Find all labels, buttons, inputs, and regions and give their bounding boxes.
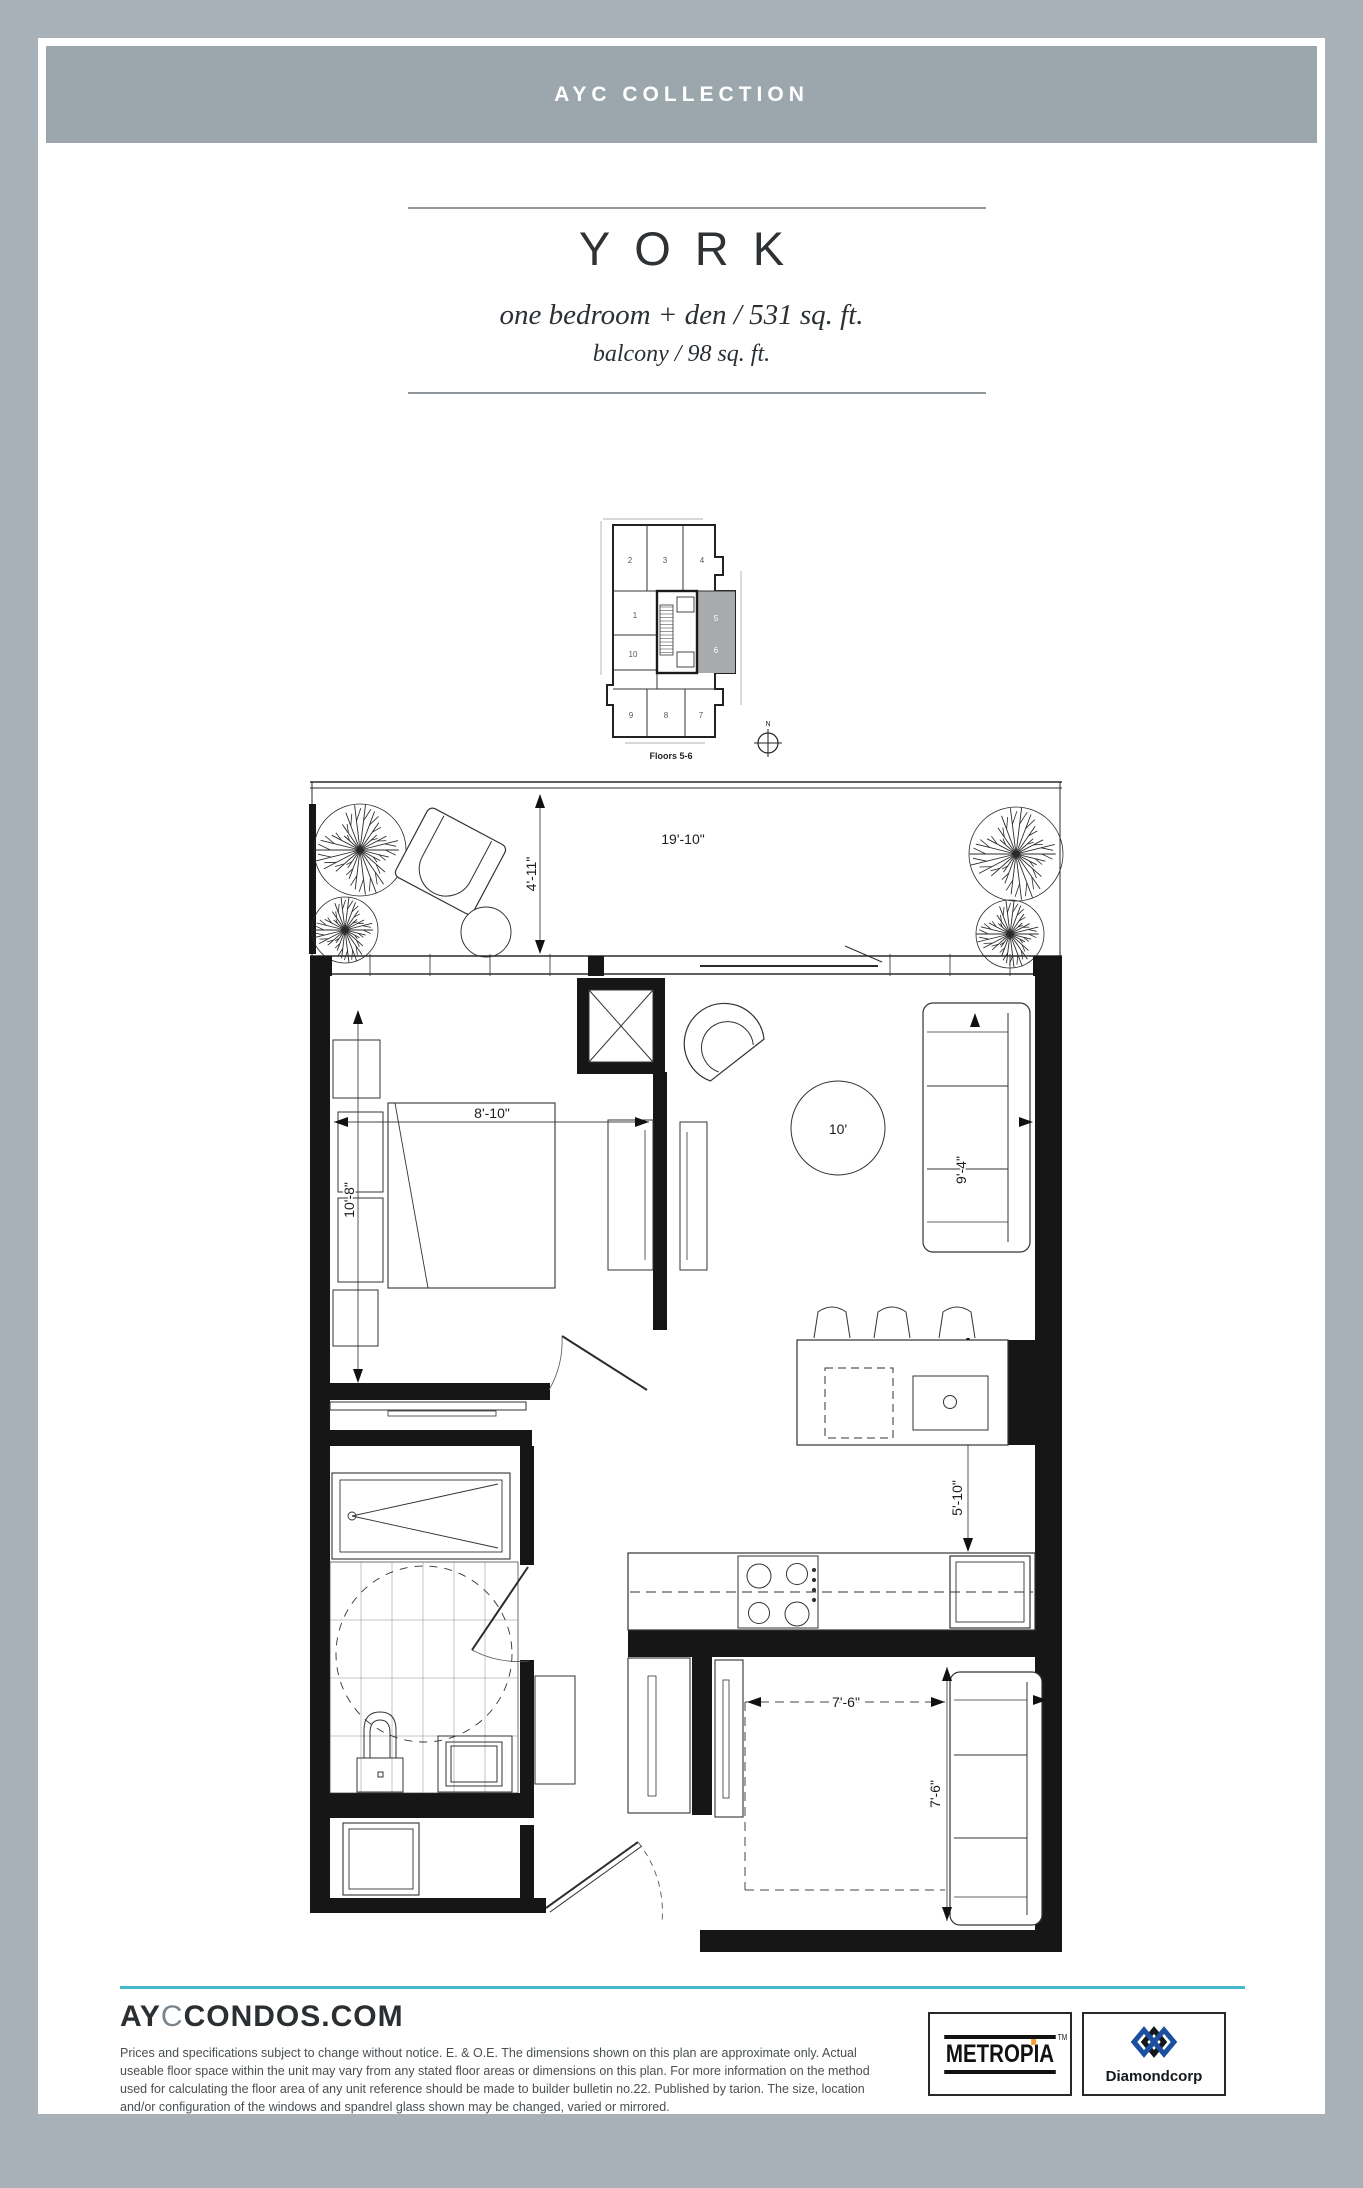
dim-den-depth: 7'-6"	[927, 1780, 943, 1808]
dim-living-depth: 9'-4"	[953, 1156, 969, 1184]
legal-text: Prices and specifications subject to cha…	[120, 2044, 890, 2117]
brochure-page: AYC COLLECTION YORK one bedroom + den / …	[0, 0, 1363, 2188]
linen-cabinet	[535, 1676, 575, 1784]
hall-console	[330, 1402, 526, 1410]
brand-url: AYCCONDOS.COM	[120, 2000, 404, 2034]
frame-bottom	[0, 2114, 1363, 2188]
floor-plan-svg: 4'-11" 19'-10"	[300, 770, 1100, 1995]
tree-icon	[314, 804, 406, 896]
dim-den-width: 7'-6"	[832, 1694, 860, 1710]
balcony-planter-wall	[309, 804, 316, 954]
key-plan: 2 3 4 1 10 9 8 7 5 6 Floors 5-6 N	[585, 505, 795, 767]
toilet	[357, 1712, 403, 1792]
den-sofa	[950, 1672, 1042, 1925]
unit-8-label: 8	[664, 711, 669, 720]
bathroom-door	[472, 1567, 528, 1650]
turning-circle	[336, 1566, 512, 1742]
arrow-up-icon	[353, 1010, 363, 1024]
den-cabinet	[628, 1658, 690, 1813]
living-sofa	[923, 1003, 1030, 1252]
bedroom	[330, 1040, 653, 1416]
nightstand	[333, 1290, 378, 1346]
balcony-table	[461, 907, 511, 957]
vanity-sink	[438, 1736, 512, 1792]
title-rule-bottom	[408, 392, 986, 394]
unit-4-label: 4	[700, 556, 705, 565]
bedroom-dresser	[608, 1120, 653, 1270]
trademark-symbol: TM	[1058, 2033, 1067, 2042]
unit-2-label: 2	[628, 556, 633, 565]
living-chair	[668, 987, 769, 1084]
unit-10-label: 10	[629, 650, 638, 659]
unit-6-label: 6	[714, 646, 719, 655]
dim-balcony-width: 19'-10"	[661, 831, 704, 847]
diamondcorp-wordmark: Diamondcorp	[1106, 2068, 1203, 2085]
shaft	[577, 978, 665, 1074]
den-outline	[745, 1702, 945, 1890]
dim-bedroom-depth: 10'-8"	[341, 1182, 357, 1218]
metropia-wordmark: METROPIA	[944, 2035, 1055, 2074]
balcony-spec: balcony / 98 sq. ft.	[0, 341, 1363, 368]
kitchen-island	[797, 1340, 1008, 1445]
bathtub	[332, 1473, 510, 1559]
dim-bedroom-width: 8'-10"	[474, 1105, 510, 1121]
header-bar: AYC COLLECTION	[46, 46, 1317, 143]
diamondcorp-logo: Diamondcorp	[1082, 2012, 1226, 2096]
arrow-right-icon	[931, 1697, 945, 1707]
bathroom	[330, 1473, 529, 1793]
tree-icon	[969, 807, 1063, 901]
arrow-down-icon	[353, 1369, 363, 1383]
nightstand	[333, 1040, 380, 1098]
kitchen-counter	[628, 1553, 1035, 1630]
bed	[388, 1103, 555, 1288]
diamondcorp-mark-icon	[1124, 2023, 1184, 2061]
dim-living-rug: 10'	[829, 1121, 847, 1137]
arrow-up-icon	[942, 1667, 952, 1681]
arrow-down-icon	[963, 1538, 973, 1552]
frame-top	[0, 0, 1363, 38]
floor-plan: 4'-11" 19'-10"	[300, 770, 1100, 1995]
footer-divider	[120, 1986, 1245, 1989]
bar-stools	[814, 1307, 975, 1338]
key-plan-svg: 2 3 4 1 10 9 8 7 5 6 Floors 5-6 N	[585, 505, 795, 767]
key-plan-highlighted-unit	[697, 591, 735, 673]
bedroom-door	[549, 1336, 647, 1390]
metropia-logo: METROPIA TM	[928, 2012, 1072, 2096]
key-plan-core	[657, 591, 697, 673]
compass-north-label: N	[765, 721, 770, 728]
tree-icon	[312, 897, 378, 963]
collection-title: AYC COLLECTION	[46, 46, 1317, 143]
tv-console	[680, 1122, 707, 1270]
unit-spec: one bedroom + den / 531 sq. ft.	[0, 299, 1363, 332]
key-plan-caption: Floors 5-6	[649, 751, 692, 761]
dim-balcony-depth: 4'-11"	[523, 857, 539, 892]
arrow-left-icon	[747, 1697, 761, 1707]
unit-9-label: 9	[629, 711, 634, 720]
laundry-closet	[343, 1823, 419, 1895]
unit-3-label: 3	[663, 556, 668, 565]
page-title: YORK	[0, 221, 1363, 276]
unit-5-label: 5	[714, 614, 719, 623]
dim-island: 5'-10"	[949, 1480, 965, 1516]
arrow-up-icon	[535, 794, 545, 808]
arrow-down-icon	[535, 940, 545, 954]
title-rule-top	[408, 207, 986, 209]
unit-1-label: 1	[633, 611, 638, 620]
unit-7-label: 7	[699, 711, 704, 720]
metropia-i-dot	[1031, 2039, 1036, 2045]
compass-icon: N	[754, 721, 782, 757]
balcony-chair	[393, 806, 507, 916]
entry-door	[546, 1842, 662, 1922]
window-wall	[310, 954, 1062, 976]
